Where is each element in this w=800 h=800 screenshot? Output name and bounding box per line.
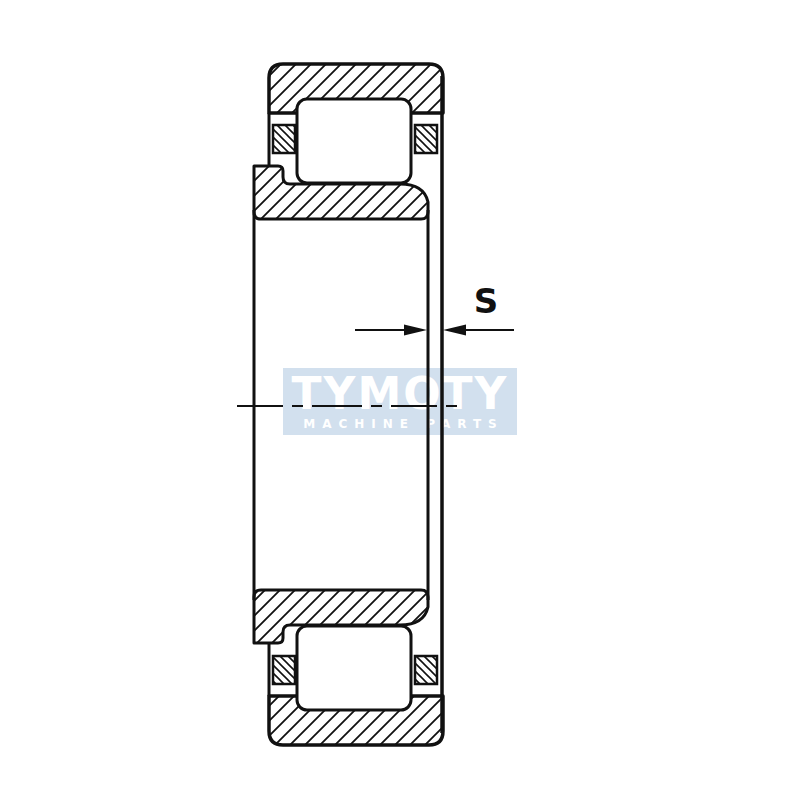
bearing-drawing-page: TYMOTY MACHINE PARTS	[0, 0, 800, 800]
cage-segment-top-right	[415, 125, 437, 153]
cage-segment-top-left	[273, 125, 295, 153]
bearing-cross-section-diagram: S	[0, 0, 800, 800]
dimension-s: S	[355, 281, 514, 336]
cage-segment-bottom-left	[273, 656, 295, 684]
cage-segment-bottom-right	[415, 656, 437, 684]
roller-top	[297, 99, 411, 183]
roller-bottom	[297, 626, 411, 710]
dimension-arrow-right-pointing-icon	[404, 325, 427, 336]
dimension-label-s: S	[474, 281, 499, 321]
dimension-arrow-left-pointing-icon	[443, 325, 466, 336]
